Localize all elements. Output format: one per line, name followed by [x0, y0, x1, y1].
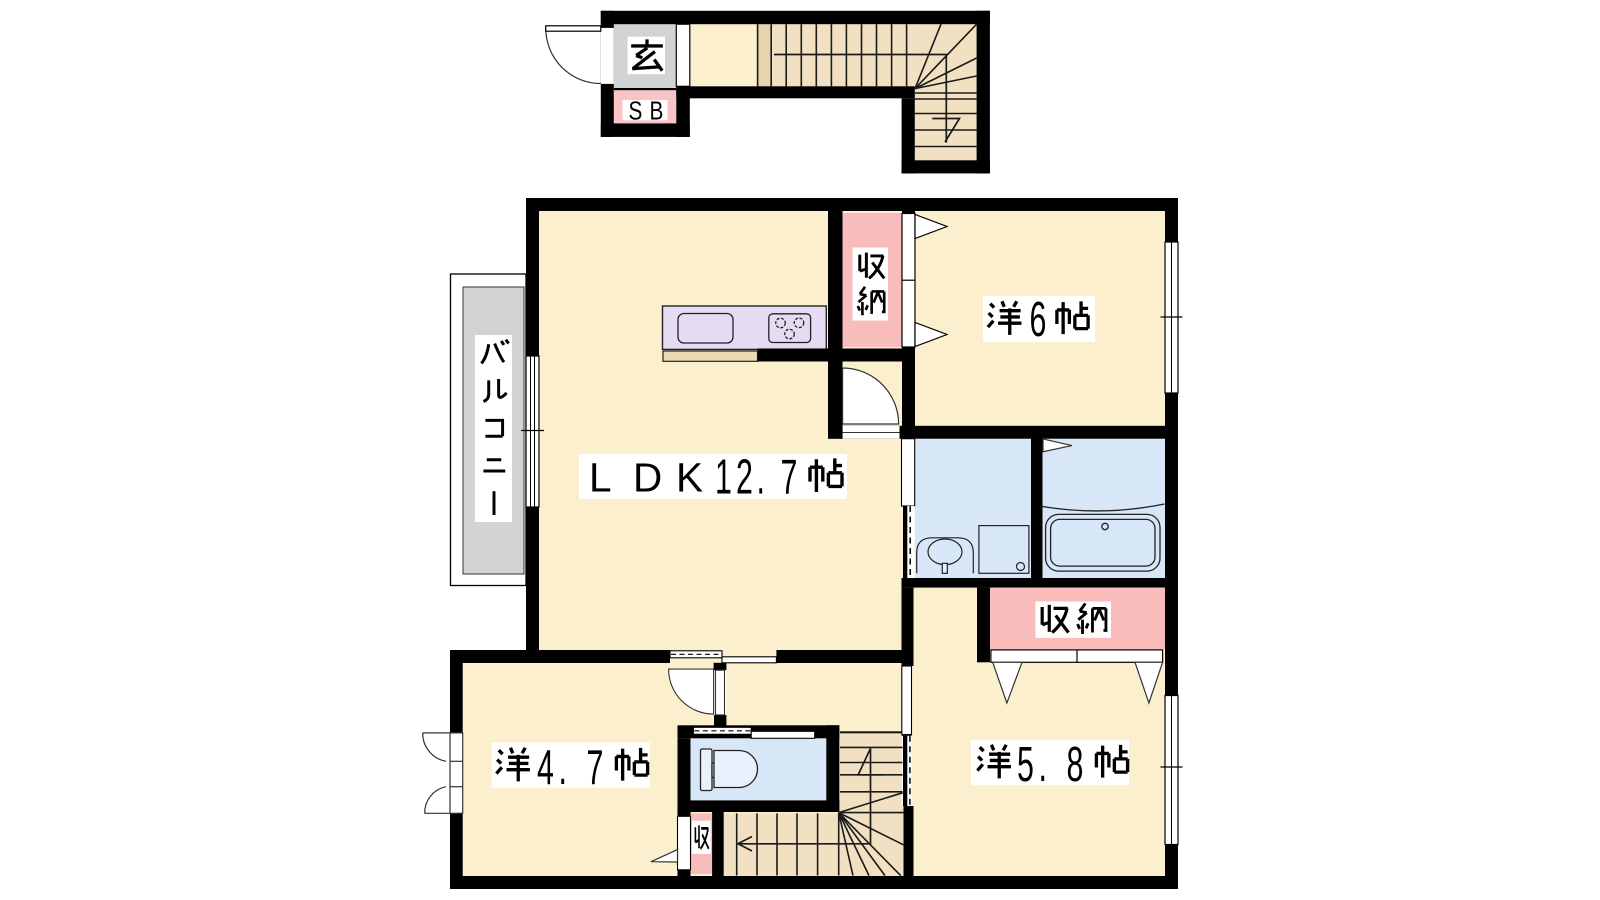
- svg-text:8: 8: [1067, 737, 1084, 792]
- svg-text:L: L: [589, 455, 612, 501]
- svg-text:B: B: [650, 96, 664, 125]
- svg-text:6: 6: [1030, 292, 1047, 347]
- svg-text:7: 7: [587, 740, 604, 795]
- svg-text:.: .: [559, 740, 567, 795]
- svg-text:5: 5: [1017, 737, 1034, 792]
- svg-text:.: .: [757, 449, 765, 504]
- svg-text:.: .: [1039, 737, 1047, 792]
- svg-text:S: S: [629, 96, 643, 125]
- svg-text:1: 1: [715, 449, 732, 504]
- svg-text:7: 7: [781, 449, 798, 504]
- svg-text:K: K: [676, 455, 703, 501]
- svg-text:4: 4: [537, 740, 554, 795]
- svg-text:2: 2: [736, 449, 753, 504]
- svg-text:D: D: [633, 455, 662, 501]
